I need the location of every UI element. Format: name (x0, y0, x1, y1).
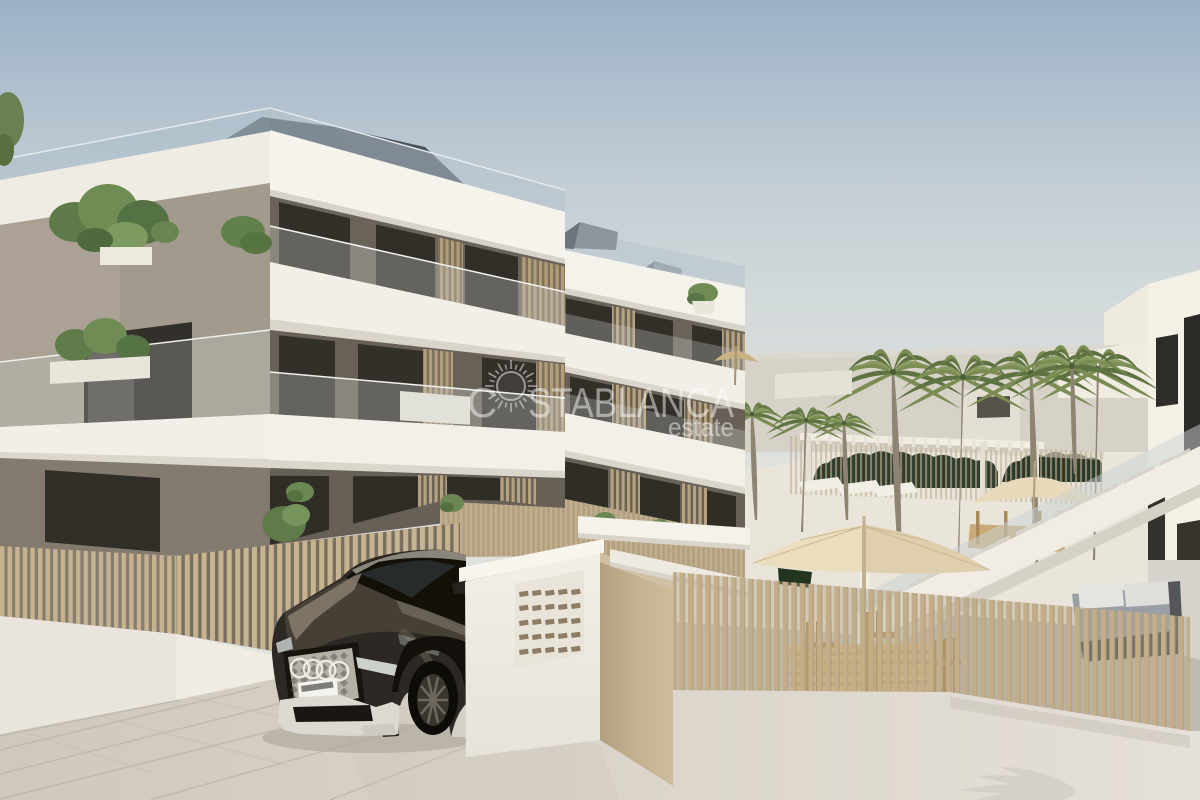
svg-text:estate: estate (668, 412, 734, 442)
